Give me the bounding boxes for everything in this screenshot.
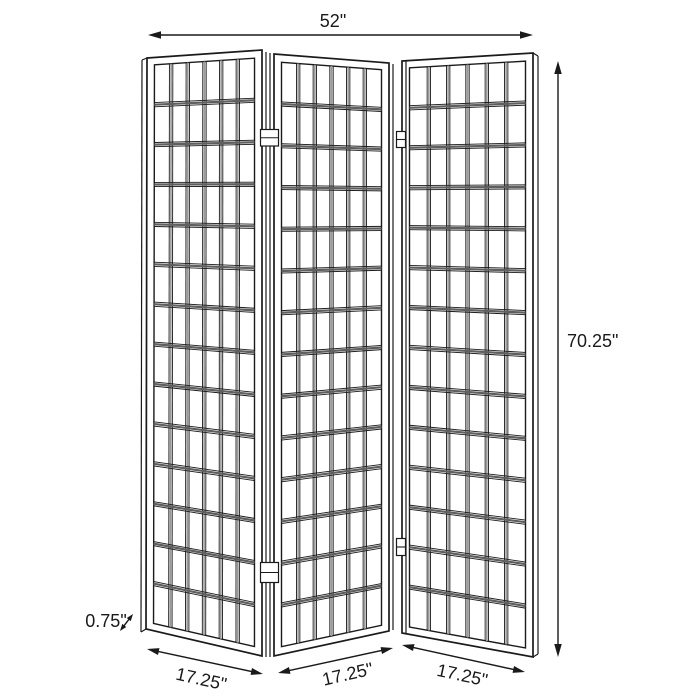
hinge-left-top [261, 130, 279, 147]
panel-grid [410, 62, 526, 644]
diagram-canvas: 52"70.25"17.25"17.25"17.25"0.75" [0, 0, 700, 700]
dimension-label-overall-height: 70.25" [567, 331, 618, 351]
hinge-right-bottom [397, 539, 406, 556]
room-divider-dimension-diagram: 52"70.25"17.25"17.25"17.25"0.75" [0, 0, 700, 700]
panel-right [402, 53, 533, 657]
dimension-label-panel-2-width: 17.25" [320, 659, 375, 690]
panel-left [146, 50, 262, 656]
dimension-label-panel-thickness: 0.75" [85, 611, 126, 631]
svg-text:0.75": 0.75" [85, 611, 126, 631]
svg-text:70.25": 70.25" [567, 331, 618, 351]
hinge-right-top [397, 132, 406, 148]
hinge-left-bottom [261, 563, 279, 583]
dimension-overall-height-arrow [554, 61, 562, 657]
svg-text:17.25": 17.25" [320, 659, 375, 690]
svg-text:52": 52" [320, 11, 346, 31]
dimension-label-panel-3-width: 17.25" [435, 660, 490, 690]
dimension-label-panel-1-width: 17.25" [174, 664, 229, 695]
svg-text:17.25": 17.25" [174, 664, 229, 695]
panel-grid [282, 64, 382, 644]
panel-middle [274, 54, 389, 656]
dimension-overall-width-arrow [148, 31, 533, 39]
svg-text:17.25": 17.25" [435, 660, 490, 690]
dimension-label-overall-width: 52" [320, 11, 346, 31]
